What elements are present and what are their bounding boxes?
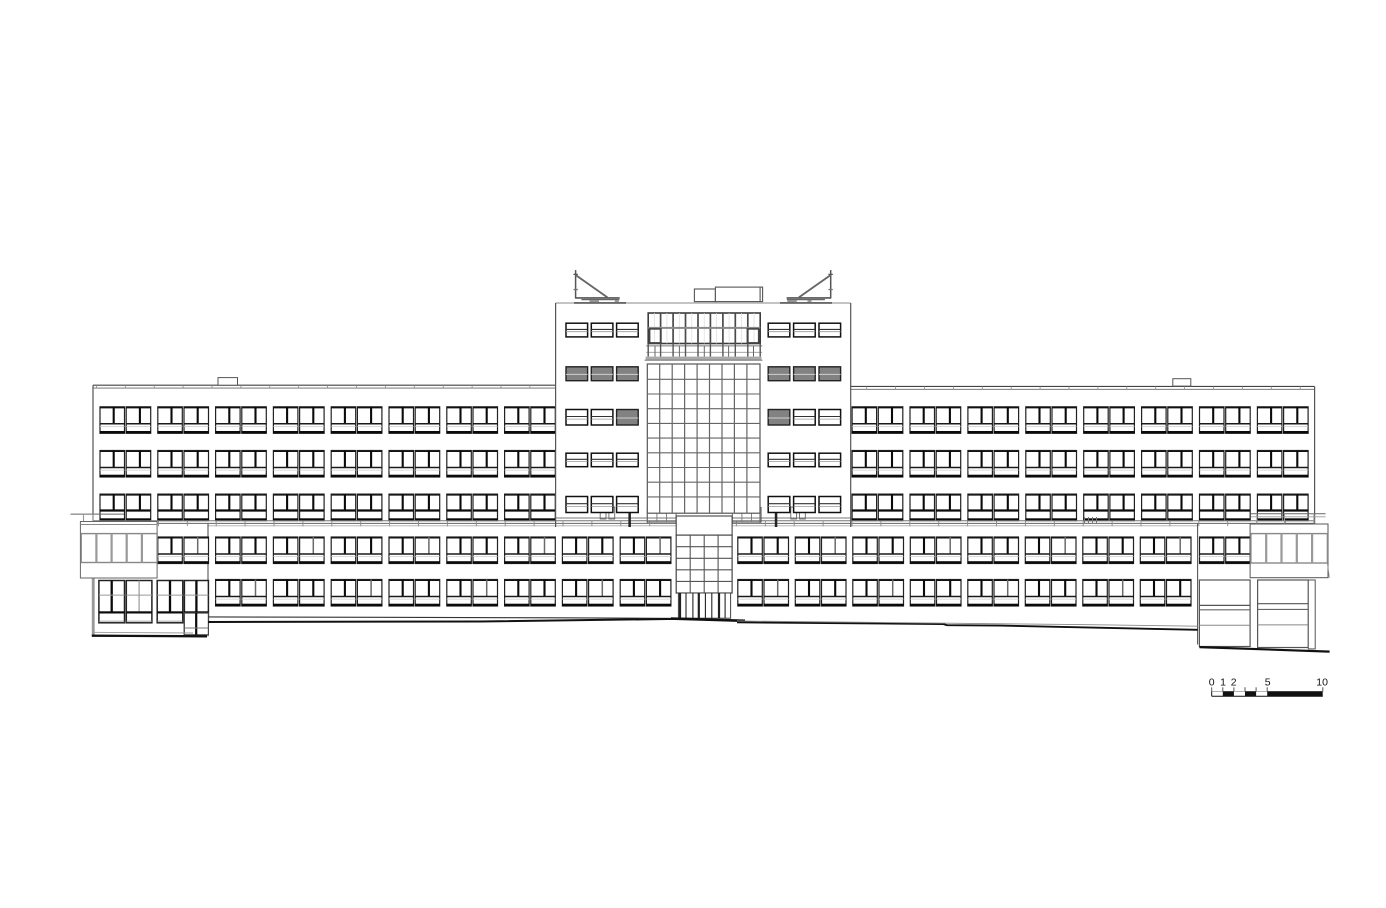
svg-text:2: 2 <box>1231 677 1237 689</box>
svg-text:0: 0 <box>1209 677 1215 689</box>
svg-text:10: 10 <box>1316 677 1328 689</box>
svg-text:1: 1 <box>1220 677 1226 689</box>
svg-text:5: 5 <box>1265 677 1271 689</box>
